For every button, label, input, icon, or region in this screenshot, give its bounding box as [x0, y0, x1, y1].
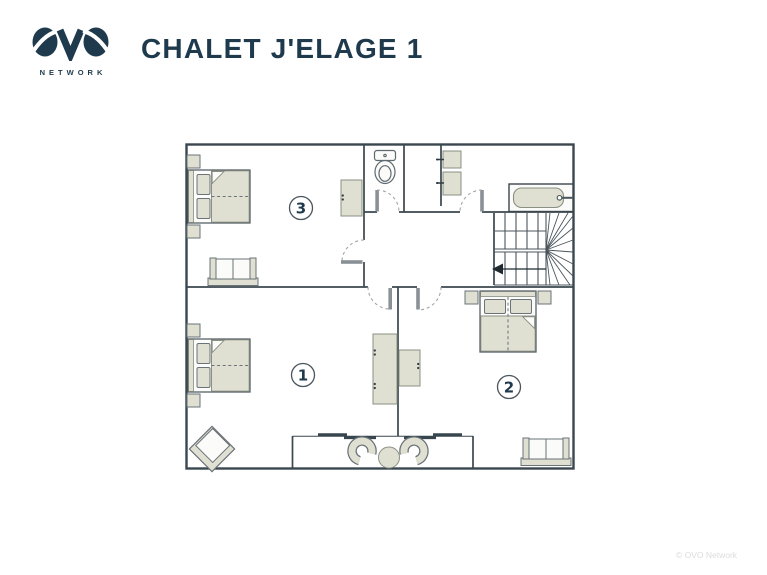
balcony-chair-icon	[352, 441, 372, 461]
bathtub-icon	[509, 184, 574, 212]
armchair-icon	[189, 426, 234, 471]
nightstand-icon	[187, 394, 200, 407]
room-badge-3: 3	[290, 197, 313, 220]
room-number: 3	[296, 199, 306, 217]
door-wc	[375, 190, 399, 212]
nightstand-icon	[187, 324, 200, 337]
bed-icon	[188, 339, 250, 392]
room-number: 2	[504, 378, 514, 396]
door-bathroom	[460, 190, 484, 212]
round-table-icon	[379, 447, 400, 468]
balcony	[318, 435, 462, 468]
bedroom-3-furniture	[187, 155, 362, 286]
room-number: 1	[298, 366, 308, 384]
staircase-icon	[492, 213, 574, 285]
bed-icon	[188, 170, 250, 223]
nightstand-icon	[465, 291, 478, 304]
sofa-icon	[521, 438, 571, 466]
wardrobe-icon	[399, 350, 420, 386]
floor-plan: 3 1 2	[0, 0, 767, 575]
sofa-icon	[208, 258, 258, 286]
nightstand-icon	[187, 155, 200, 168]
hall-cupboard-icon	[436, 151, 461, 195]
copyright-watermark: © OVO Network	[676, 550, 737, 560]
bed-icon	[480, 291, 536, 352]
room-badge-2: 2	[498, 376, 521, 399]
toilet-icon	[375, 151, 396, 184]
wardrobe-icon	[341, 180, 362, 216]
wardrobe-icon	[373, 334, 397, 404]
nightstand-icon	[538, 291, 551, 304]
door-bedroom-2	[416, 287, 441, 310]
door-bedroom-1	[368, 287, 392, 310]
door-bedroom-3	[341, 240, 364, 264]
room-badge-1: 1	[292, 364, 315, 387]
nightstand-icon	[187, 225, 200, 238]
page: NETWORK CHALET J'ELAGE 1	[0, 0, 767, 575]
balcony-chair-icon	[404, 441, 424, 461]
bedroom-2-furniture	[399, 291, 571, 466]
